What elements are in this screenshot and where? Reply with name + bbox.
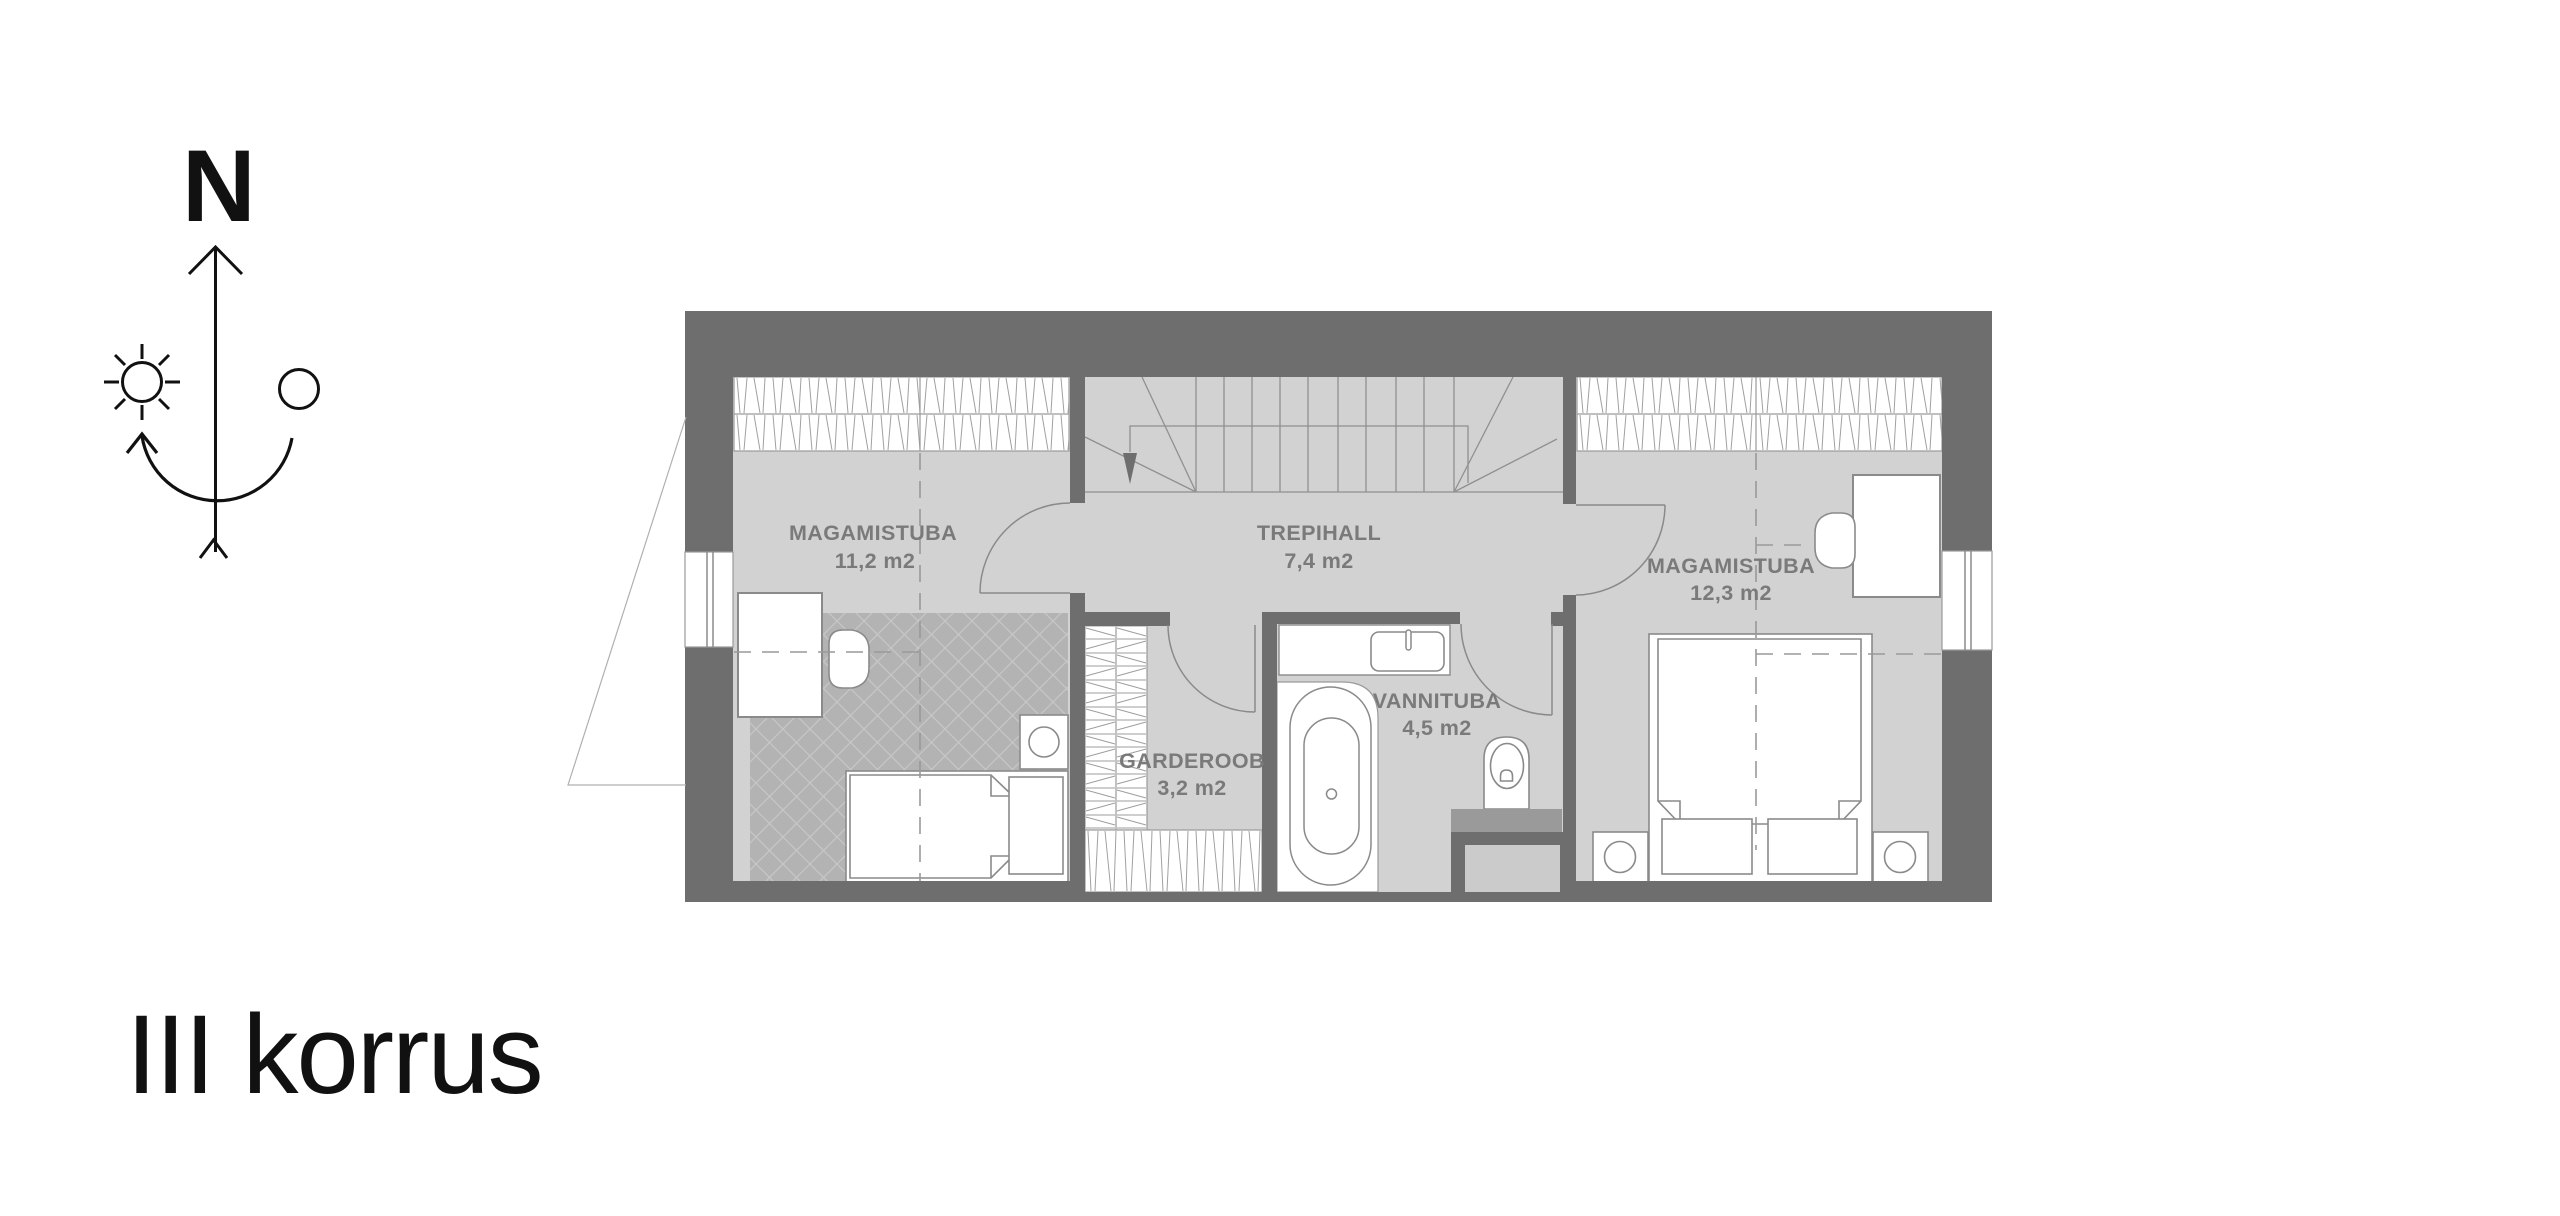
svg-text:MAGAMISTUBA: MAGAMISTUBA: [789, 521, 957, 545]
svg-text:11,2 m2: 11,2 m2: [835, 549, 916, 573]
svg-text:GARDEROOB: GARDEROOB: [1119, 749, 1265, 773]
svg-text:4,5 m2: 4,5 m2: [1402, 716, 1471, 740]
svg-text:7,4 m2: 7,4 m2: [1284, 549, 1353, 573]
svg-text:III korrus: III korrus: [126, 992, 542, 1117]
svg-text:3,2 m2: 3,2 m2: [1157, 776, 1226, 800]
svg-text:12,3 m2: 12,3 m2: [1690, 581, 1772, 605]
svg-text:N: N: [182, 129, 256, 243]
svg-text:TREPIHALL: TREPIHALL: [1257, 521, 1381, 545]
svg-text:MAGAMISTUBA: MAGAMISTUBA: [1647, 554, 1815, 578]
svg-text:VANNITUBA: VANNITUBA: [1373, 689, 1502, 713]
